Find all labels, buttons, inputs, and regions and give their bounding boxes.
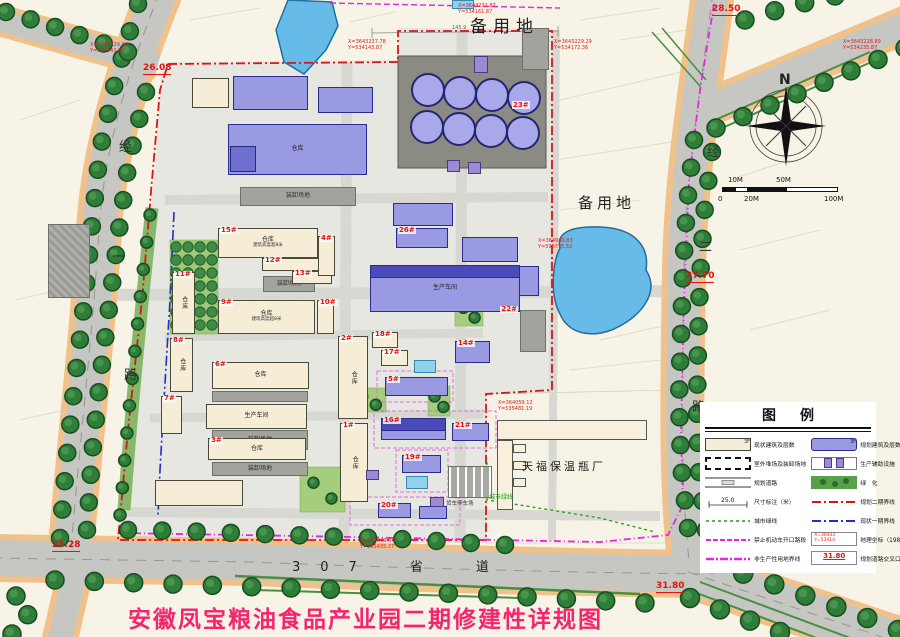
orchard-tree xyxy=(183,242,193,252)
orchard-tree xyxy=(195,242,205,252)
tree xyxy=(462,534,479,551)
legend-item-label: 规划二期界线 xyxy=(860,497,895,506)
legend-item-label: 城市绿线 xyxy=(754,516,777,525)
coordinate-y: Y=535435.27 xyxy=(360,544,394,550)
tree xyxy=(90,384,107,401)
building-number: 9# xyxy=(220,299,233,306)
building-label: 仓库 xyxy=(178,358,185,372)
orchard-tree xyxy=(195,320,205,330)
tree xyxy=(85,572,103,590)
legend-item-label: 现状建筑及层数 xyxy=(754,440,795,449)
building-number: 22# xyxy=(500,306,518,313)
phase1-boundary-swatch-cell xyxy=(811,514,857,527)
legend-item-label: 绿 化 xyxy=(860,478,877,487)
tree xyxy=(3,625,21,637)
tree xyxy=(686,132,703,149)
building-22: 生产车间22# xyxy=(370,265,520,312)
building-number: 5# xyxy=(387,376,400,383)
tree xyxy=(164,575,182,593)
storage-tank xyxy=(475,78,509,112)
scale-bar-tick: 100M xyxy=(824,195,843,203)
building-15: 仓库建筑高度超8米15# xyxy=(218,228,318,258)
tree xyxy=(326,493,337,504)
building-number: 15# xyxy=(220,227,238,234)
tree xyxy=(672,353,689,370)
greening-swatch xyxy=(811,476,857,489)
storage-tank xyxy=(443,76,477,110)
aux-facility-swatch-cell xyxy=(811,457,857,470)
coordinate-y: Y=534172.36 xyxy=(554,45,588,51)
orchard-tree xyxy=(207,268,217,278)
scale-bar-segment xyxy=(786,187,838,192)
planned-building-swatch-cell: 3F xyxy=(811,438,857,451)
tree xyxy=(144,209,156,221)
building xyxy=(497,420,647,440)
tree xyxy=(291,527,308,544)
site-label: 145.9 xyxy=(452,25,466,31)
site-plan: 装卸场地装卸场地装卸场地装卸场地仓库26#生产车间22#仓库建筑高度超8米15#… xyxy=(0,0,900,637)
orchard-tree xyxy=(195,268,205,278)
building-label: 装卸场地 xyxy=(248,466,272,473)
tree xyxy=(858,609,877,628)
tree xyxy=(707,119,725,137)
building xyxy=(393,203,453,226)
outdoor-yard-swatch xyxy=(705,457,751,470)
legend-item-phase1-boundary: 现状一期界线 xyxy=(811,511,900,530)
elevation-marker: 28.50 xyxy=(712,5,740,16)
building-3: 仓库3# xyxy=(208,438,306,460)
building-21: 21# xyxy=(452,423,489,441)
tank-farm-number: 23# xyxy=(512,101,530,109)
road-label-jingyi: 一 xyxy=(112,246,125,265)
building xyxy=(48,224,90,298)
tree xyxy=(111,219,128,236)
tree xyxy=(203,576,221,594)
coordinate-y: Y=598735.52 xyxy=(538,244,572,250)
storage-tank xyxy=(474,114,508,148)
tree xyxy=(676,492,693,509)
tree xyxy=(690,318,707,335)
tree xyxy=(125,574,143,592)
legend-panel: 图例 3F现状建筑及层数3F规划建筑及层数室外堆场及装卸场地生产辅助设施规划道路… xyxy=(700,402,876,573)
coordinate-label: X=3643231.87Y=534161.87 xyxy=(458,3,496,15)
area-label: 备用地 xyxy=(578,192,635,213)
tree xyxy=(71,27,88,44)
tree xyxy=(680,520,697,537)
legend-item-existing-building: 3F现状建筑及层数 xyxy=(705,435,806,454)
tree xyxy=(106,78,123,95)
tree xyxy=(130,0,147,13)
building-number: 1# xyxy=(342,422,355,429)
tree xyxy=(129,345,141,357)
coordinate-y: Y=534143.87 xyxy=(90,48,124,54)
tree xyxy=(82,466,99,483)
building xyxy=(192,78,229,108)
building xyxy=(430,497,444,507)
legend-item-geo-coordinate: X=36432Y=53414地理坐标（1980西安坐标） xyxy=(811,530,900,549)
building xyxy=(462,237,518,262)
elevation-marker: 25.28 xyxy=(52,541,80,552)
legend-item-city-green-line: 城市绿线 xyxy=(705,511,806,530)
legend-item-phase2-boundary: 规划二期界线 xyxy=(811,492,900,511)
building-number: 19# xyxy=(404,454,422,461)
compass-north-label: N xyxy=(779,72,791,88)
tree xyxy=(62,416,79,433)
orchard-tree xyxy=(195,255,205,265)
tree xyxy=(672,437,689,454)
building xyxy=(406,476,428,489)
elevation-marker: 27.70 xyxy=(686,272,714,283)
tree xyxy=(361,582,379,600)
tree xyxy=(696,201,713,218)
building-number: 21# xyxy=(454,422,472,429)
geo-coordinate-swatch: X=36432Y=53414 xyxy=(811,532,857,546)
legend-item-label: 生产辅助设施 xyxy=(860,459,895,468)
tree xyxy=(796,0,814,12)
building-number: 6# xyxy=(214,361,227,368)
building-10: 10# xyxy=(317,300,334,334)
legend-separator xyxy=(705,431,871,432)
legend-item-planned-road: 规划道路 xyxy=(705,473,806,492)
building-number: 18# xyxy=(374,331,392,338)
tree xyxy=(243,578,261,596)
tree xyxy=(370,399,381,410)
building-sublabel: 建筑高度超8米 xyxy=(253,244,283,249)
legend-line-swatch xyxy=(705,552,751,565)
site-label: 天福保温瓶厂 xyxy=(522,458,606,474)
outdoor-yard-swatch-cell xyxy=(705,457,751,470)
building-number: 10# xyxy=(319,299,337,306)
building-number: 11# xyxy=(174,271,192,278)
legend-line-swatch xyxy=(705,533,751,546)
building-number: 12# xyxy=(264,257,282,264)
dimension-swatch: 25.0 xyxy=(705,495,751,508)
tree xyxy=(100,301,117,318)
tree xyxy=(46,571,64,589)
orchard-tree xyxy=(195,294,205,304)
tree xyxy=(766,2,784,20)
scale-bar-tick: 0 xyxy=(718,195,722,203)
tree xyxy=(7,587,25,605)
tree xyxy=(842,62,860,80)
tree xyxy=(222,524,239,541)
tree xyxy=(137,263,149,275)
tree xyxy=(0,4,15,21)
building-roof-band xyxy=(371,266,519,278)
building-number: 26# xyxy=(398,227,416,234)
building-9: 仓库建筑高度超8米9# xyxy=(218,300,315,334)
tree xyxy=(68,359,85,376)
tree xyxy=(497,537,514,554)
tree xyxy=(138,84,155,101)
building-label: 仓库 xyxy=(254,372,266,379)
orchard-tree xyxy=(171,242,181,252)
planned-building-swatch: 3F xyxy=(811,438,857,451)
building xyxy=(419,506,447,519)
tree xyxy=(869,50,887,68)
coordinate-label: X=3643229.29Y=534172.36 xyxy=(554,39,592,51)
legend-item-dimension: 25.0尺寸标注（米） xyxy=(705,492,806,511)
building-number: 16# xyxy=(383,417,401,424)
no-opening-line-top xyxy=(330,3,560,8)
scale-bar-tick: 50M xyxy=(776,176,791,184)
tree xyxy=(438,402,449,413)
building-label: 仓库 xyxy=(350,371,357,385)
road-elevation-swatch: 31.80 xyxy=(811,551,857,565)
building xyxy=(474,56,488,73)
building-number: 17# xyxy=(383,349,401,356)
tree xyxy=(700,172,717,189)
tree xyxy=(282,579,300,597)
tree xyxy=(761,96,779,114)
elevation-marker: 26.08 xyxy=(143,64,171,75)
aux-facility-swatch xyxy=(811,457,857,470)
elevation-marker: 31.80 xyxy=(656,582,684,593)
legend-item-road-elevation: 31.80规划道路交叉口高程 xyxy=(811,549,900,568)
legend-item-greening: 绿 化 xyxy=(811,473,900,492)
building-18: 18# xyxy=(372,332,398,348)
tree xyxy=(741,611,760,630)
tree xyxy=(469,312,480,323)
greening-swatch-cell xyxy=(811,476,857,489)
tree xyxy=(673,298,690,315)
existing-building-swatch: 3F xyxy=(705,438,751,451)
tree xyxy=(673,325,690,342)
coordinate-y: Y=534161.87 xyxy=(458,9,492,15)
tree xyxy=(428,532,445,549)
building xyxy=(448,466,492,498)
building xyxy=(447,160,460,172)
tree xyxy=(93,356,110,373)
building-number: 20# xyxy=(380,502,398,509)
scale-bar-tick: 20M xyxy=(744,195,759,203)
building-label: 仓库 xyxy=(251,446,263,453)
orchard-tree xyxy=(195,307,205,317)
tree xyxy=(321,580,339,598)
tree xyxy=(22,11,39,28)
building xyxy=(414,360,436,373)
scale-bar-tick: 10M xyxy=(728,176,743,184)
svg-text:25.0: 25.0 xyxy=(721,497,735,504)
orchard-tree xyxy=(207,281,217,291)
tree xyxy=(815,73,833,91)
legend-item-label: 非生产性用地界线 xyxy=(754,554,800,563)
building-8: 仓库8# xyxy=(170,338,193,392)
building xyxy=(233,76,308,110)
storage-tank xyxy=(442,112,476,146)
legend-line-swatch xyxy=(811,495,857,508)
building xyxy=(230,146,256,172)
road-label-s307: 307 省 道 xyxy=(292,556,509,575)
tree xyxy=(154,522,171,539)
road-elevation-swatch-cell: 31.80 xyxy=(811,552,857,565)
legend-title: 图例 xyxy=(705,405,871,425)
building-number: 3# xyxy=(210,437,223,444)
tree xyxy=(131,110,148,127)
building xyxy=(520,310,546,352)
tree xyxy=(119,454,131,466)
tree xyxy=(711,600,730,619)
building-20: 20# xyxy=(378,503,411,518)
legend-item-label: 规划建筑及层数 xyxy=(860,440,900,449)
tree xyxy=(689,376,706,393)
tree xyxy=(132,318,144,330)
legend-item-label: 尺寸标注（米） xyxy=(754,497,795,506)
tree xyxy=(680,187,697,204)
legend-items: 3F现状建筑及层数3F规划建筑及层数室外堆场及装卸场地生产辅助设施规划道路绿 化… xyxy=(705,435,871,568)
building-label: 生产车间 xyxy=(433,285,457,292)
scale-bar-segment xyxy=(735,187,748,192)
coordinate-y: Y=534235.87 xyxy=(843,45,877,51)
road-label-jingyi: 经 xyxy=(119,136,132,155)
tree xyxy=(116,482,128,494)
building xyxy=(155,480,243,506)
geo-coordinate-swatch-cell: X=36432Y=53414 xyxy=(811,533,857,546)
tree xyxy=(676,242,693,259)
building-label: 仓库 xyxy=(351,456,358,470)
orchard-tree xyxy=(207,255,217,265)
legend-item-outdoor-yard: 室外堆场及装卸场地 xyxy=(705,454,806,473)
tree xyxy=(325,528,342,545)
orchard-tree xyxy=(207,320,217,330)
building: 装卸场地 xyxy=(240,187,356,206)
building: 装卸场地 xyxy=(212,462,308,476)
tree xyxy=(257,526,274,543)
scale-bar-segment xyxy=(722,187,735,192)
building-17: 17# xyxy=(381,350,408,366)
road-label-jinger: 经 xyxy=(707,141,720,160)
tree xyxy=(683,159,700,176)
building-sublabel: 建筑高度超8米 xyxy=(252,318,282,323)
legend-item-non-production-boundary: 非生产性用地界线 xyxy=(705,549,806,568)
tree xyxy=(796,586,815,605)
site-label: 货车停车场 xyxy=(446,499,474,507)
coordinate-label: X=364960.83Y=598735.52 xyxy=(538,238,573,250)
building-1: 仓库1# xyxy=(340,423,368,502)
tree xyxy=(671,409,688,426)
legend-item-planned-building: 3F规划建筑及层数 xyxy=(811,435,900,454)
coordinate-label: X=3643228.89Y=534235.87 xyxy=(843,39,881,51)
building xyxy=(468,162,481,174)
building xyxy=(318,87,373,113)
phase2-boundary-swatch-cell xyxy=(811,495,857,508)
orchard-tree xyxy=(207,242,217,252)
tree xyxy=(121,23,138,40)
building-number: 7# xyxy=(163,395,176,402)
tree xyxy=(56,473,73,490)
legend-item-label: 规划道路交叉口高程 xyxy=(860,554,900,563)
tree xyxy=(188,523,205,540)
tree xyxy=(89,161,106,178)
tree xyxy=(87,411,104,428)
road-label-jinger: 二 xyxy=(699,236,712,255)
no-vehicle-opening-swatch-cell xyxy=(705,533,751,546)
legend-separator xyxy=(705,427,871,429)
building-number: 13# xyxy=(294,270,312,277)
building-label: 仓库 xyxy=(180,296,187,310)
tree xyxy=(75,303,92,320)
legend-line-swatch xyxy=(705,514,751,527)
legend-item-no-vehicle-opening: 禁止机动车开口路段 xyxy=(705,530,806,549)
area-label: 备用地 xyxy=(470,12,539,37)
building xyxy=(513,444,526,453)
site-label: 城市绿线 xyxy=(489,492,513,501)
tree xyxy=(121,427,133,439)
tree xyxy=(308,477,319,488)
legend-item-label: 现状一期界线 xyxy=(860,516,895,525)
coordinate-label: X=364019.64Y=535435.27 xyxy=(360,538,395,550)
existing-building-swatch-cell: 3F xyxy=(705,438,751,451)
tree xyxy=(115,192,132,209)
storage-tank xyxy=(411,73,445,107)
building xyxy=(212,391,308,402)
dimension-swatch-cell: 25.0 xyxy=(705,495,751,508)
tree xyxy=(114,509,126,521)
building-16: 16# xyxy=(381,418,446,440)
tree xyxy=(123,400,135,412)
tree xyxy=(86,190,103,207)
orchard-tree xyxy=(171,255,181,265)
legend-item-label: 地理坐标（1980西安坐标） xyxy=(860,535,900,544)
planned-road-swatch xyxy=(705,476,751,489)
tree xyxy=(47,19,64,36)
building xyxy=(366,470,379,480)
tree xyxy=(141,236,153,248)
building-5: 5# xyxy=(385,377,448,396)
legend-item-aux-facility: 生产辅助设施 xyxy=(811,454,900,473)
legend-item-label: 禁止机动车开口路段 xyxy=(754,535,806,544)
road-label-jingyi: 路 xyxy=(124,364,137,383)
legend-item-label: 规划道路 xyxy=(754,478,777,487)
building-4: 4# xyxy=(318,236,335,276)
building-label: 仓库 xyxy=(291,146,303,153)
tree xyxy=(394,531,411,548)
scale-bar: 010M20M50M100M xyxy=(716,176,850,202)
orchard-tree xyxy=(207,294,217,304)
tree xyxy=(400,583,418,601)
building-11: 仓库11# xyxy=(172,272,195,334)
legend-item-label: 室外堆场及装卸场地 xyxy=(754,459,806,468)
tree xyxy=(826,0,844,5)
tree xyxy=(691,289,708,306)
city-green-line-swatch-cell xyxy=(705,514,751,527)
tree xyxy=(100,105,117,122)
tree xyxy=(636,594,654,612)
tree xyxy=(119,164,136,181)
tree xyxy=(673,464,690,481)
tree xyxy=(827,597,846,616)
tree xyxy=(59,444,76,461)
building-26: 26# xyxy=(396,228,448,248)
building-19: 19# xyxy=(402,455,441,473)
building-7: 7# xyxy=(161,396,182,434)
coordinate-y: Y=534143.87 xyxy=(348,45,382,51)
building-2: 仓库2# xyxy=(338,336,368,419)
tree xyxy=(93,133,110,150)
building-number: 2# xyxy=(340,335,353,342)
tree xyxy=(19,606,37,624)
tree xyxy=(71,331,88,348)
coordinate-label: X=3643237.78Y=534143.87 xyxy=(348,39,386,51)
building-6: 仓库6# xyxy=(212,362,309,389)
tree xyxy=(677,214,694,231)
building-14: 14# xyxy=(455,341,490,363)
building-label: 生产车间 xyxy=(244,413,268,420)
orchard-tree xyxy=(195,281,205,291)
tree xyxy=(79,522,96,539)
tree xyxy=(80,494,97,511)
building-number: 8# xyxy=(172,337,185,344)
